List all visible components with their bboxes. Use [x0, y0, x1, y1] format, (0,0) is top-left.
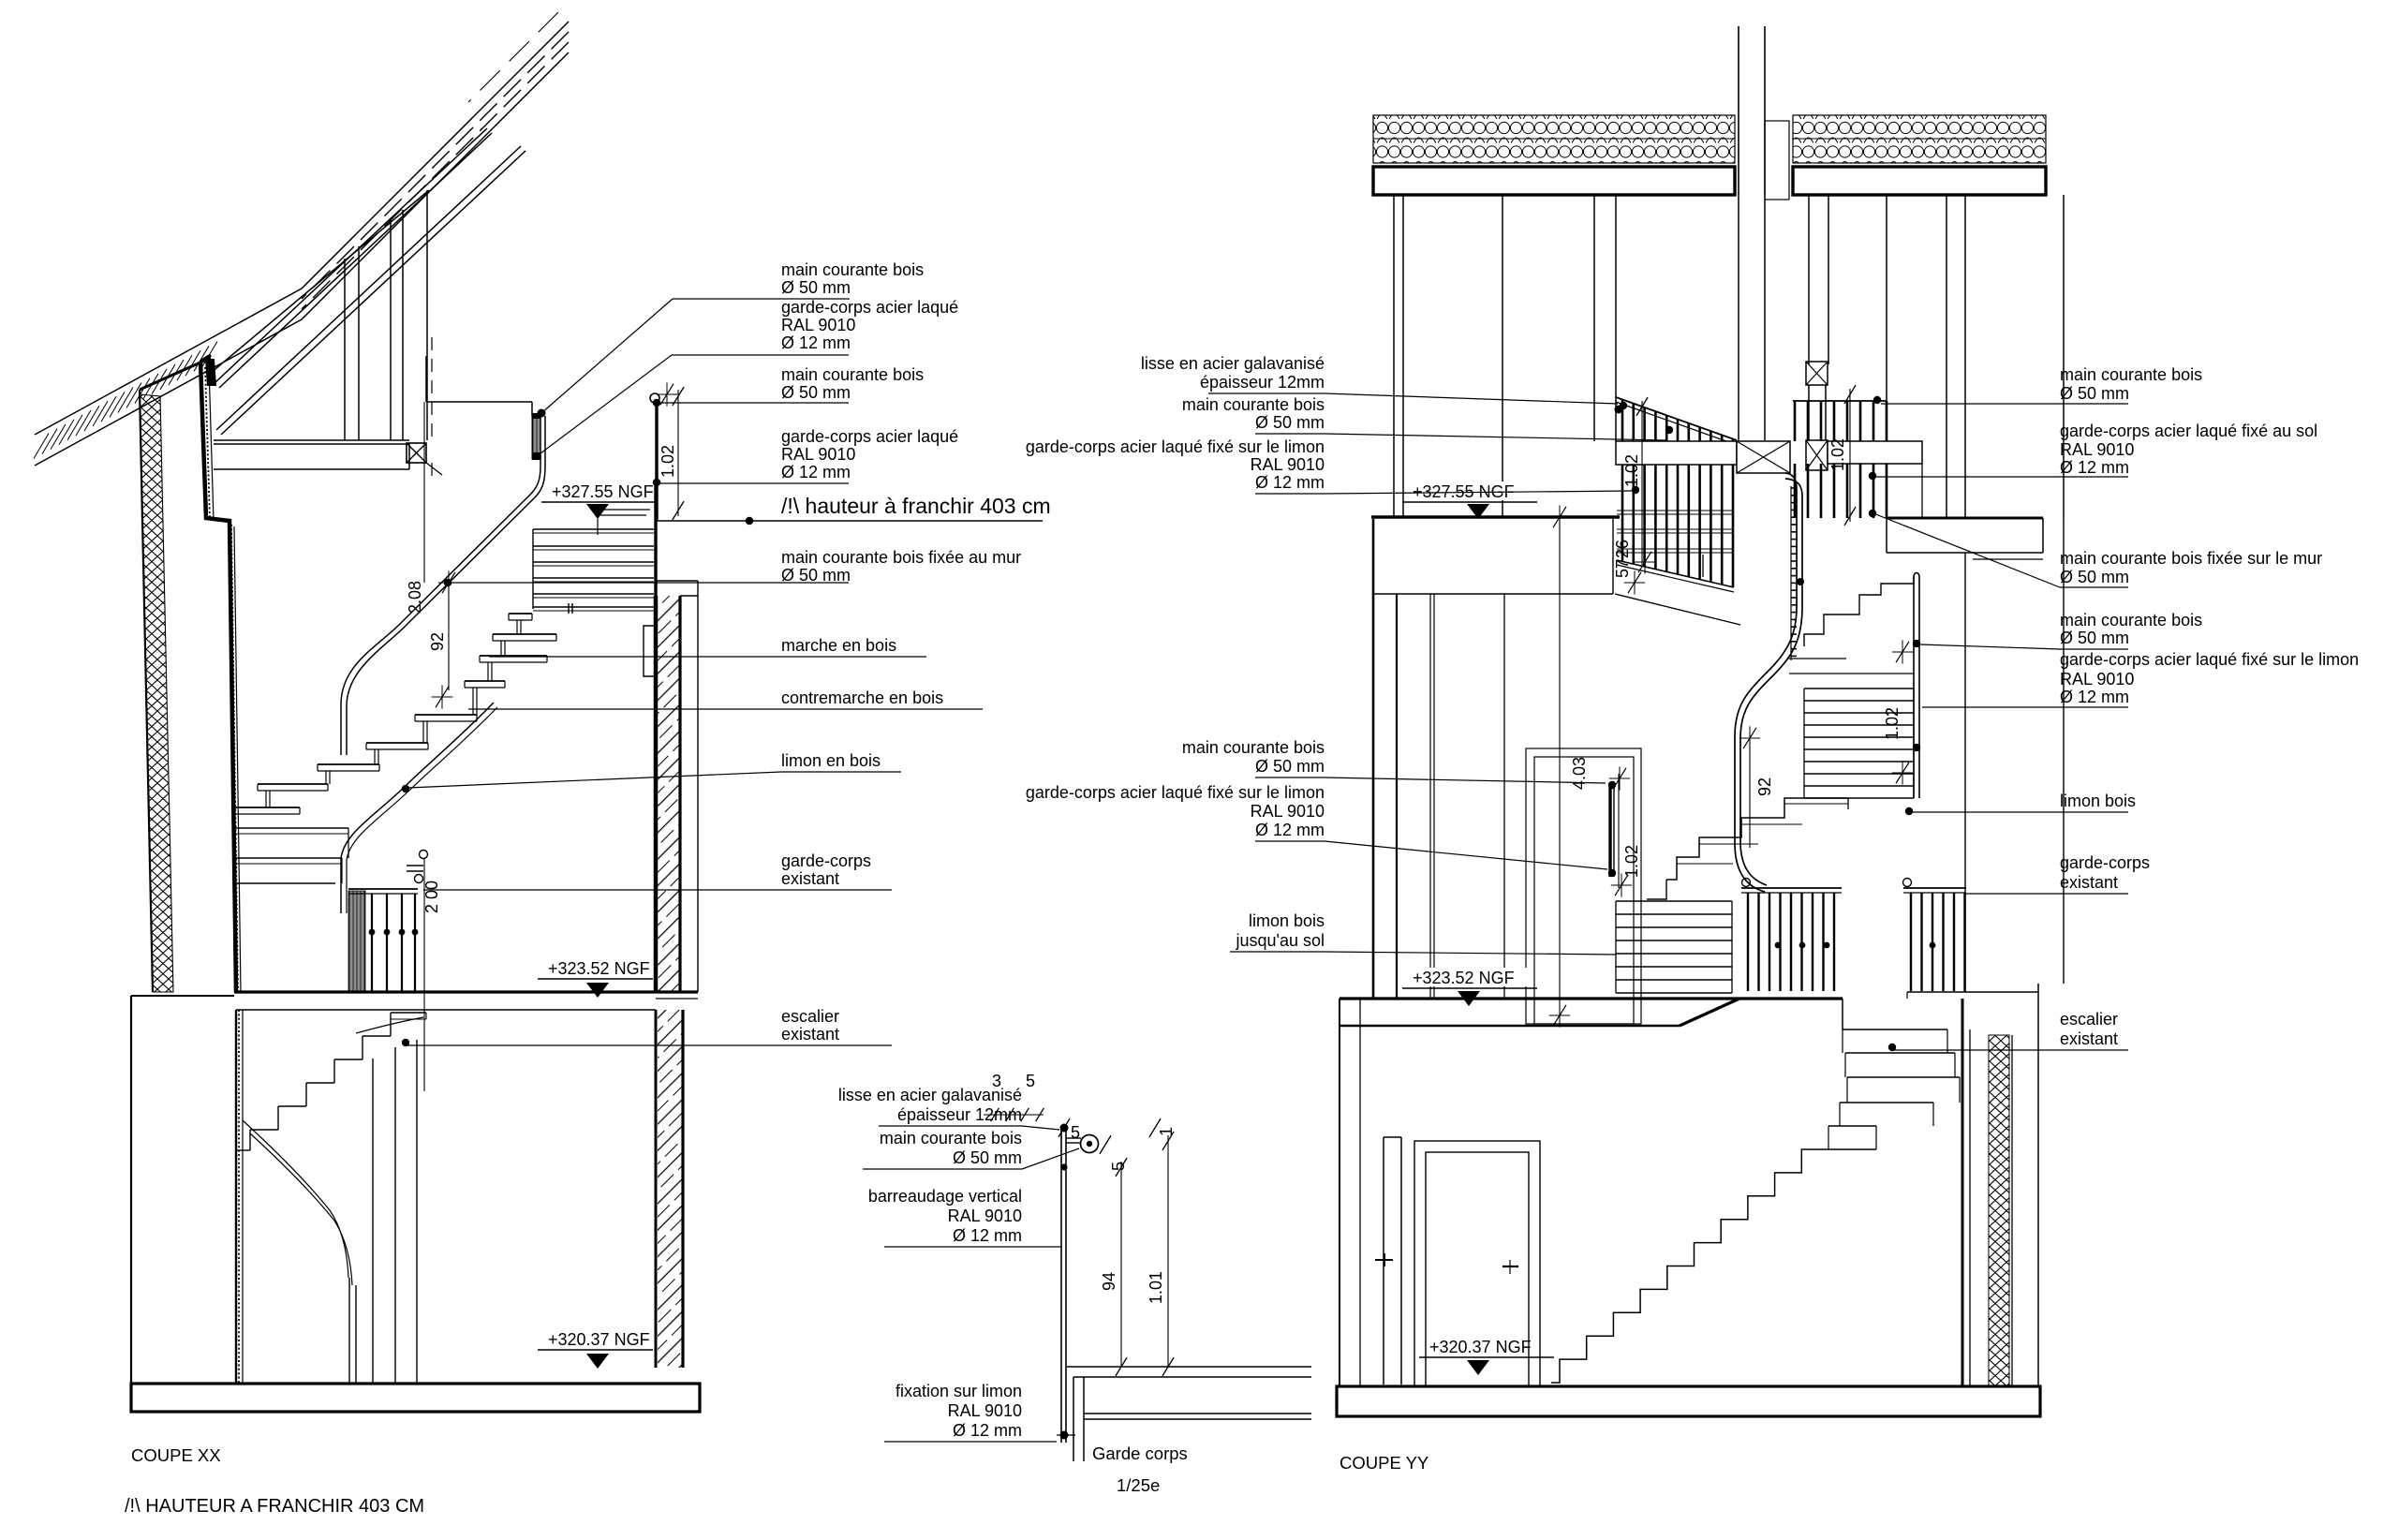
svg-text:Garde corps: Garde corps: [1092, 1444, 1188, 1463]
svg-text:RAL 9010: RAL 9010: [2060, 440, 2134, 459]
svg-text:main courante bois fixée au mu: main courante bois fixée au mur: [781, 548, 1021, 567]
svg-text:RAL 9010: RAL 9010: [2060, 670, 2134, 689]
svg-text:RAL 9010: RAL 9010: [948, 1207, 1022, 1225]
svg-text:main courante bois: main courante bois: [880, 1129, 1022, 1148]
svg-text:+327.55 NGF: +327.55 NGF: [552, 482, 654, 501]
svg-text:existant: existant: [781, 869, 839, 888]
svg-text:Ø 50 mm: Ø 50 mm: [953, 1148, 1022, 1167]
svg-text:jusqu'au sol: jusqu'au sol: [1236, 931, 1325, 950]
svg-text:Ø 12 mm: Ø 12 mm: [953, 1226, 1022, 1245]
svg-text:5: 5: [1071, 1123, 1080, 1142]
svg-text:garde-corps: garde-corps: [2060, 853, 2150, 872]
svg-text:26: 26: [1613, 540, 1632, 558]
svg-text:Ø 12 mm: Ø 12 mm: [1255, 821, 1325, 839]
svg-text:barreaudage vertical: barreaudage vertical: [868, 1187, 1022, 1206]
svg-text:Ø 50 mm: Ø 50 mm: [781, 566, 851, 585]
svg-text:garde-corps acier laqué fixé a: garde-corps acier laqué fixé au sol: [2060, 422, 2317, 440]
svg-text:escalier: escalier: [781, 1007, 839, 1026]
svg-text:Ø 12 mm: Ø 12 mm: [781, 333, 851, 352]
svg-text:92: 92: [428, 632, 447, 651]
svg-text:COUPE YY: COUPE YY: [1340, 1453, 1428, 1473]
svg-text:1.02: 1.02: [1622, 845, 1641, 878]
svg-text:garde-corps acier laqué fixé s: garde-corps acier laqué fixé sur le limo…: [2060, 650, 2359, 669]
svg-text:main courante bois fixée sur l: main courante bois fixée sur le mur: [2060, 549, 2322, 568]
svg-text:limon bois: limon bois: [1249, 911, 1325, 930]
svg-text:contremarche en bois: contremarche en bois: [781, 689, 943, 707]
svg-text:5: 5: [1026, 1072, 1035, 1090]
svg-text:5: 5: [1109, 1162, 1128, 1171]
svg-text:lisse en acier galavanisé: lisse en acier galavanisé: [1141, 354, 1325, 373]
svg-text:limon bois: limon bois: [2060, 792, 2136, 810]
svg-text:1.02: 1.02: [1622, 454, 1641, 487]
svg-text:Ø 50 mm: Ø 50 mm: [1255, 413, 1325, 432]
svg-text:main courante bois: main courante bois: [781, 365, 924, 384]
svg-text:main courante bois: main courante bois: [2060, 365, 2202, 384]
svg-text:limon en bois: limon en bois: [781, 751, 881, 770]
svg-text:RAL 9010: RAL 9010: [948, 1401, 1022, 1420]
svg-text:Ø 12 mm: Ø 12 mm: [781, 463, 851, 481]
svg-text:main courante bois: main courante bois: [1182, 395, 1325, 414]
svg-text:Ø 50 mm: Ø 50 mm: [1255, 757, 1325, 776]
svg-text:Ø 12 mm: Ø 12 mm: [1255, 473, 1325, 492]
svg-text:Ø 12 mm: Ø 12 mm: [953, 1421, 1022, 1440]
svg-text:2 00: 2 00: [422, 881, 441, 913]
svg-text:lisse en acier galavanisé: lisse en acier galavanisé: [838, 1086, 1022, 1104]
svg-text:RAL 9010: RAL 9010: [781, 316, 855, 334]
svg-text:1: 1: [1157, 1127, 1176, 1136]
svg-text:Ø 50 mm: Ø 50 mm: [2060, 384, 2129, 403]
svg-text:57: 57: [1613, 559, 1632, 578]
svg-text:94: 94: [1100, 1272, 1118, 1291]
svg-text:main courante bois: main courante bois: [781, 260, 924, 279]
svg-text:+323.52 NGF: +323.52 NGF: [1413, 969, 1515, 987]
svg-text:+320.37 NGF: +320.37 NGF: [1429, 1338, 1532, 1356]
svg-text:garde-corps: garde-corps: [781, 851, 871, 870]
svg-text:RAL 9010: RAL 9010: [781, 445, 855, 464]
svg-text:main courante bois: main courante bois: [2060, 611, 2202, 629]
svg-text:+323.52 NGF: +323.52 NGF: [548, 959, 650, 978]
svg-text:existant: existant: [2060, 873, 2118, 892]
svg-text:Ø 12 mm: Ø 12 mm: [2060, 688, 2129, 706]
svg-text:main courante bois: main courante bois: [1182, 738, 1325, 757]
svg-text:garde-corps acier laqué: garde-corps acier laqué: [781, 427, 958, 446]
svg-text:92: 92: [1755, 777, 1774, 796]
svg-text:garde-corps acier laqué fixé s: garde-corps acier laqué fixé sur le limo…: [1026, 437, 1325, 456]
svg-text:1.02: 1.02: [1883, 707, 1902, 740]
svg-text:garde-corps acier laqué: garde-corps acier laqué: [781, 298, 958, 317]
svg-text:escalier: escalier: [2060, 1010, 2118, 1029]
svg-text:Ø 50 mm: Ø 50 mm: [2060, 629, 2129, 647]
svg-text:marche en bois: marche en bois: [781, 636, 896, 655]
svg-text:épaisseur 12mm: épaisseur 12mm: [1200, 373, 1325, 392]
svg-text:+320.37 NGF: +320.37 NGF: [548, 1330, 650, 1349]
svg-text:4.03: 4.03: [1570, 757, 1589, 790]
svg-text:/!\ HAUTEUR A FRANCHIR 403 CM: /!\ HAUTEUR A FRANCHIR 403 CM: [125, 1496, 424, 1517]
svg-text:1.02: 1.02: [1828, 438, 1847, 471]
svg-text:1.01: 1.01: [1147, 1271, 1165, 1304]
svg-text:garde-corps acier laqué fixé s: garde-corps acier laqué fixé sur le limo…: [1026, 783, 1325, 802]
svg-text:2.08: 2.08: [406, 581, 424, 614]
svg-text:fixation sur limon: fixation sur limon: [896, 1382, 1022, 1400]
svg-text:Ø 50 mm: Ø 50 mm: [781, 383, 851, 402]
svg-text:1/25e: 1/25e: [1117, 1475, 1160, 1495]
svg-text:existant: existant: [781, 1025, 839, 1044]
svg-text:RAL 9010: RAL 9010: [1251, 802, 1325, 821]
svg-text:Ø 50 mm: Ø 50 mm: [2060, 568, 2129, 586]
svg-text:Ø 12 mm: Ø 12 mm: [2060, 458, 2129, 477]
svg-text:COUPE XX: COUPE XX: [131, 1445, 221, 1465]
svg-text:RAL 9010: RAL 9010: [1251, 455, 1325, 474]
svg-text:existant: existant: [2060, 1029, 2118, 1048]
svg-text:épaisseur 12mm: épaisseur 12mm: [897, 1105, 1022, 1124]
svg-text:/!\ hauteur à franchir 403 cm: /!\ hauteur à franchir 403 cm: [781, 494, 1051, 518]
svg-text:1.02: 1.02: [659, 445, 677, 478]
svg-text:Ø 50 mm: Ø 50 mm: [781, 278, 851, 297]
